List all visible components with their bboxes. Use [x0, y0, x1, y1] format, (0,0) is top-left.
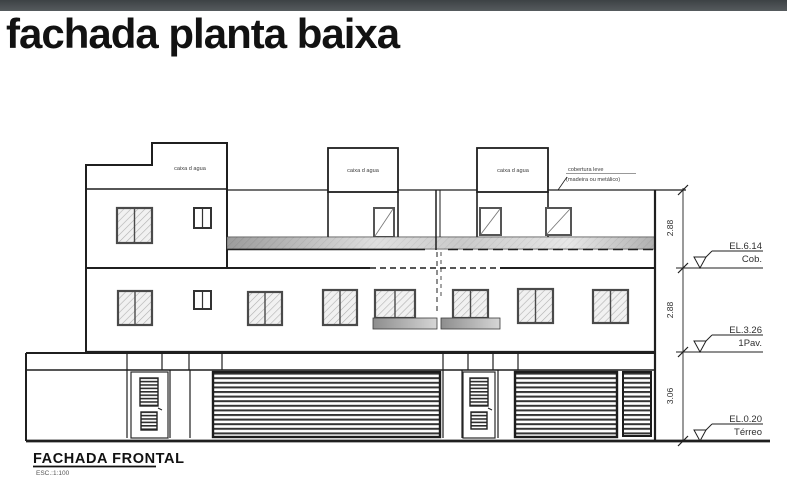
- caption-title: FACHADA FRONTAL: [33, 451, 185, 467]
- garage-door-right: [515, 372, 617, 437]
- elevation-marker-cob: EL.6.14 Cob.: [694, 241, 763, 268]
- water-tank-label: caixa d agua: [174, 166, 207, 172]
- water-tank-label: caixa d agua: [497, 168, 530, 174]
- dimension-upper: 2.88: [665, 219, 675, 236]
- window: [518, 289, 553, 323]
- balcony-door-window: [373, 290, 437, 329]
- side-gate-panel: [623, 372, 651, 436]
- dimension-chain: 2.88 2.88 3.06: [665, 185, 763, 446]
- rooftop-small-window: [194, 208, 211, 228]
- light-roof-annotation: cobertura leve (madeira ou metálico): [558, 167, 636, 190]
- small-window: [194, 291, 211, 309]
- elevation-name: Cob.: [742, 254, 762, 265]
- rooftop-window: [117, 208, 152, 243]
- balcony-door-window: [441, 290, 500, 329]
- water-tank-box-left: caixa d agua: [86, 143, 227, 268]
- elevation-name: Térreo: [734, 427, 762, 438]
- level-triangle-icon: [694, 430, 706, 441]
- dimension-lower: 3.06: [665, 387, 675, 404]
- rooftop-door: [480, 208, 501, 235]
- elevation-name: 1Pav.: [738, 338, 762, 349]
- balcony-slab: [373, 318, 437, 329]
- level-triangle-icon: [694, 341, 706, 352]
- window: [118, 291, 152, 325]
- level-triangle-icon: [694, 257, 706, 268]
- roof-label-line1: cobertura leve: [568, 167, 603, 173]
- roof-slab-band: [227, 237, 655, 250]
- elevation-marker-1pav: EL.3.26 1Pav.: [694, 325, 763, 352]
- elevation-value: EL.6.14: [729, 241, 762, 252]
- caption-scale: ESC.:1:100: [36, 470, 70, 477]
- window: [248, 292, 282, 325]
- drawing-caption: FACHADA FRONTAL ESC.:1:100: [33, 451, 185, 477]
- window: [323, 290, 357, 325]
- water-tank-label: caixa d agua: [347, 168, 380, 174]
- window: [593, 290, 628, 323]
- facade-drawing: caixa d agua caixa d agua caixa d agua: [0, 0, 787, 488]
- rooftop-door: [374, 208, 394, 237]
- screenshot-root: fachada planta baixa: [0, 0, 787, 488]
- dimension-middle: 2.88: [665, 301, 675, 318]
- entry-door-louvered: [463, 372, 495, 438]
- elevation-value: EL.3.26: [729, 325, 762, 336]
- center-party-wall: [436, 190, 441, 315]
- roof-label-line2: (madeira ou metálico): [566, 177, 620, 183]
- elevation-marker-terreo: EL.0.20 Térreo: [694, 414, 763, 441]
- garage-door-left: [213, 372, 440, 437]
- elevation-value: EL.0.20: [729, 414, 762, 425]
- rooftop-door: [546, 208, 571, 235]
- ground-floor: [26, 353, 770, 441]
- beam-band-ticks: [127, 353, 518, 370]
- balcony-slab: [441, 318, 500, 329]
- entry-door-louvered: [131, 372, 168, 438]
